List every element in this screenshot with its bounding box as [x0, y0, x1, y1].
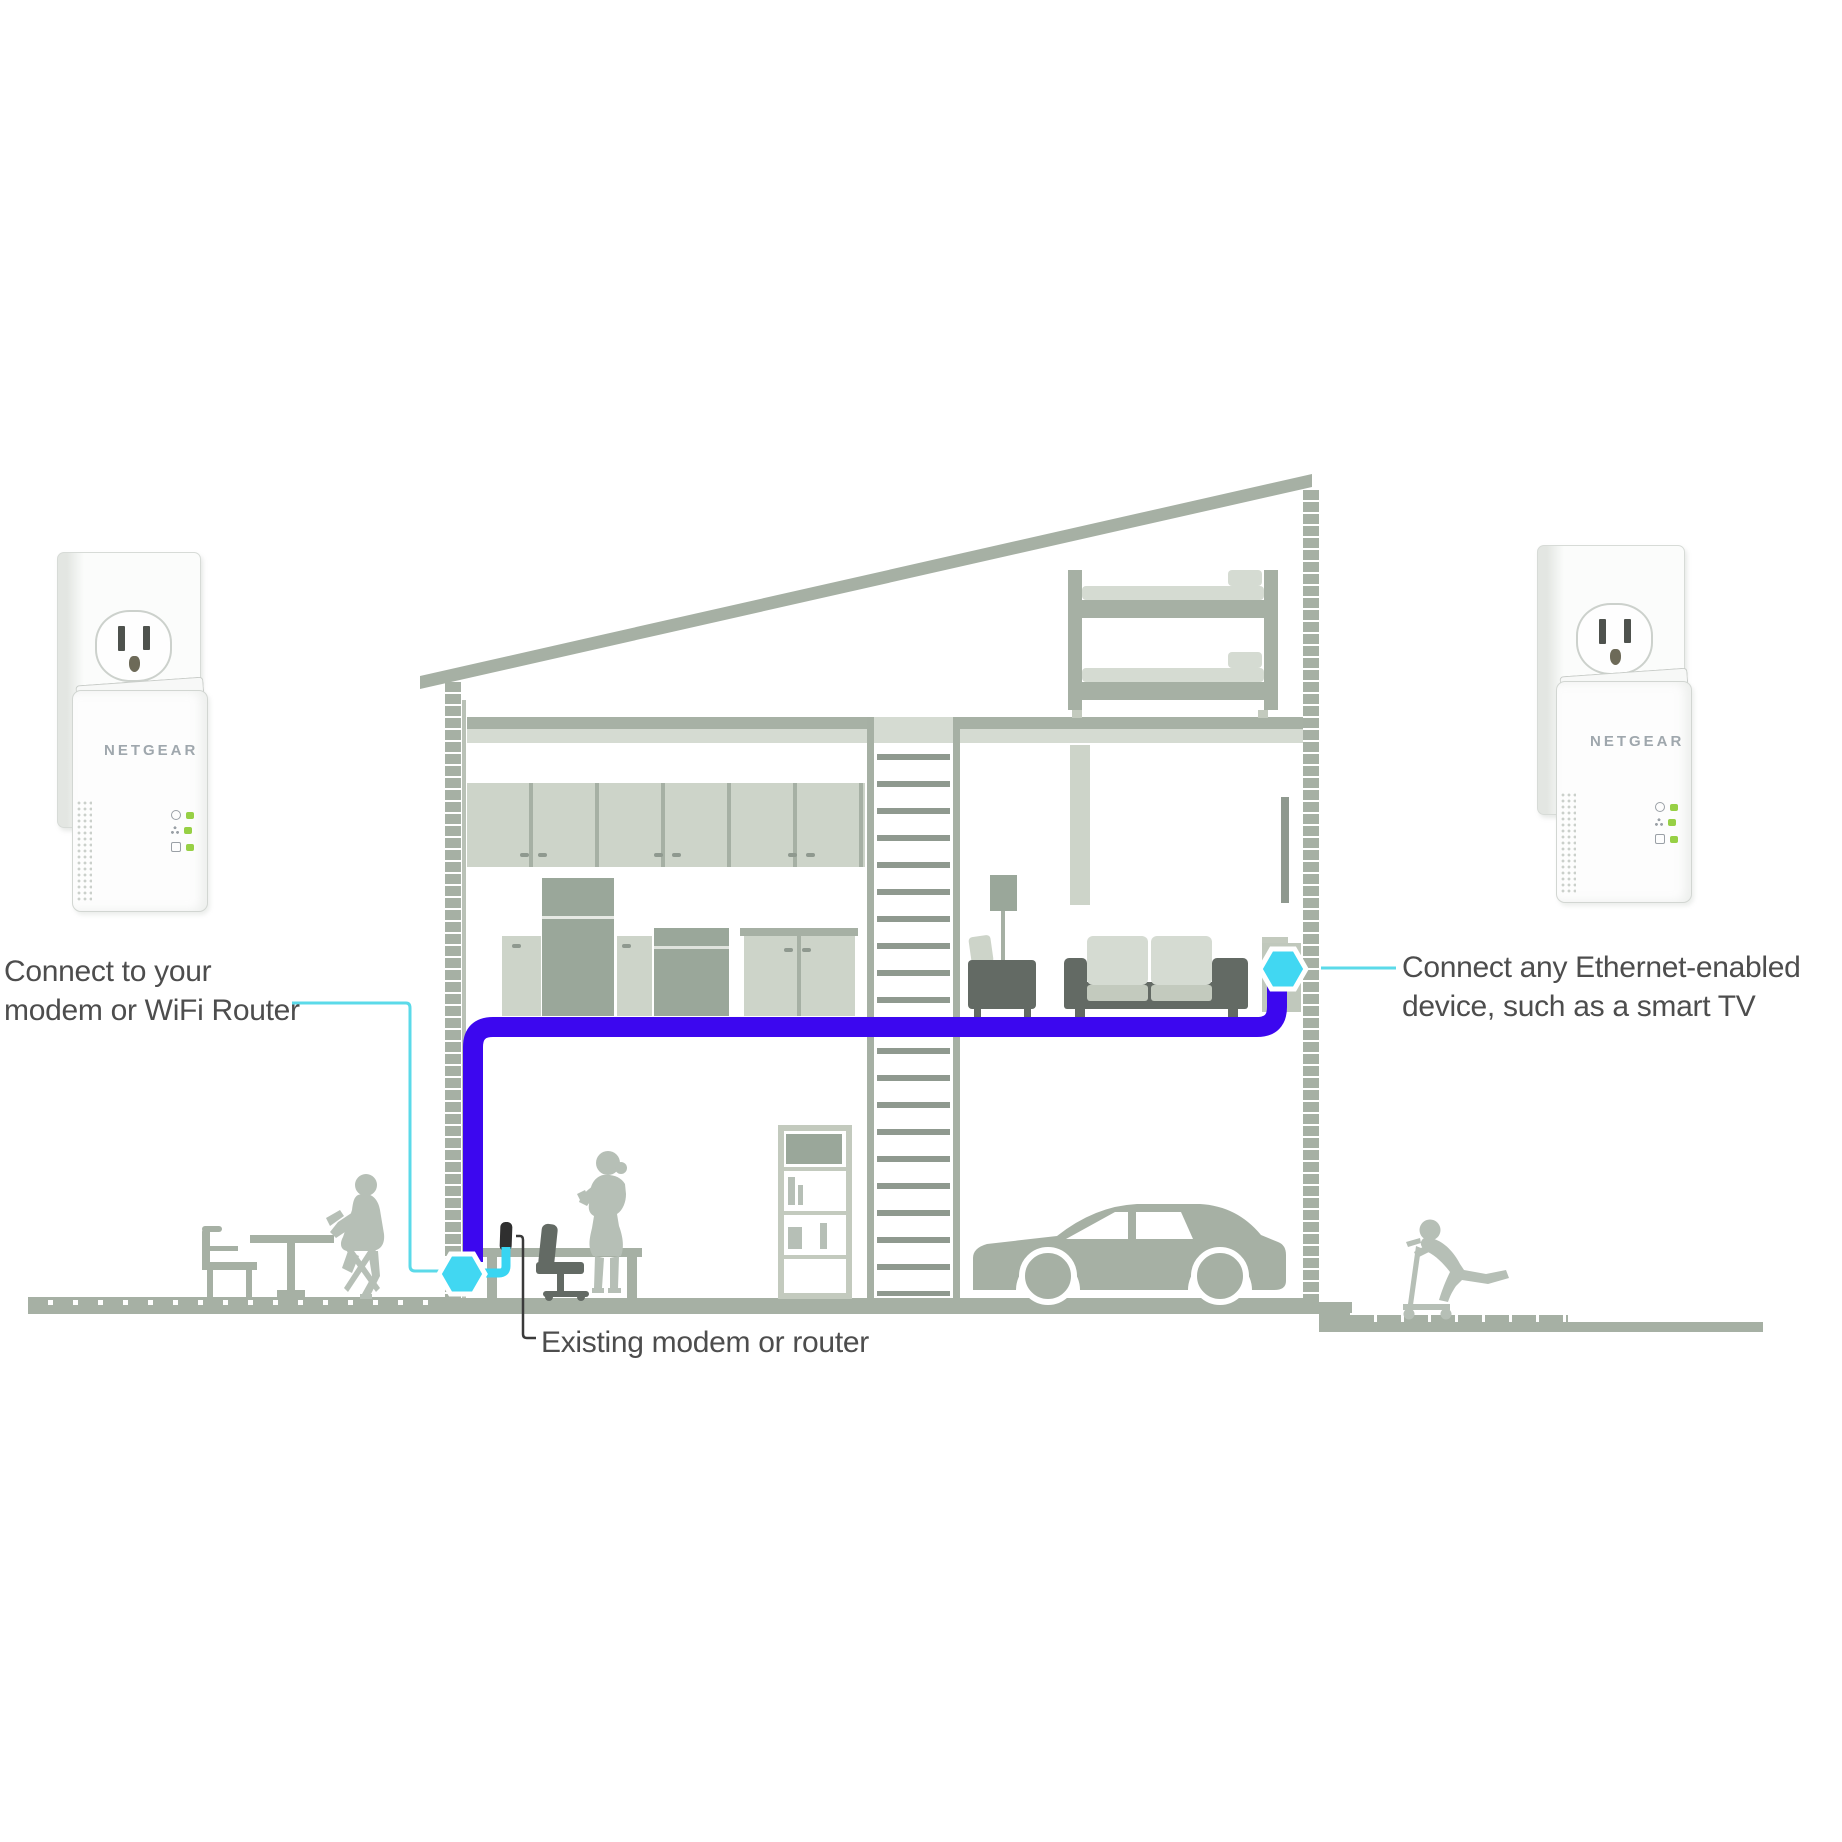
scooter-kid-silhouette: [1403, 1220, 1509, 1320]
roof: [420, 474, 1312, 689]
left-annotation-line2: modem or WiFi Router: [4, 991, 300, 1030]
modem-annotation-label: Existing modem or router: [541, 1323, 869, 1362]
left-hexagon-connector-icon: [439, 1254, 485, 1294]
right-hexagon-connector-icon: [1260, 949, 1306, 989]
modem-annotation-line: [516, 1236, 536, 1338]
car-silhouette: [973, 1204, 1286, 1302]
right-annotation-line2: device, such as a smart TV: [1402, 987, 1801, 1026]
right-annotation-label: Connect any Ethernet-enabled device, suc…: [1402, 948, 1801, 1026]
man-silhouette: [326, 1174, 384, 1299]
left-annotation-label: Connect to your modem or WiFi Router: [4, 952, 300, 1030]
right-annotation-line1: Connect any Ethernet-enabled: [1402, 948, 1801, 987]
diagram-overlay: [0, 0, 1842, 1842]
powerline-diagram: NETGEAR NETGEAR: [0, 0, 1842, 1842]
modem-annotation-text: Existing modem or router: [541, 1323, 869, 1362]
left-annotation-line1: Connect to your: [4, 952, 300, 991]
woman-silhouette: [577, 1151, 627, 1293]
